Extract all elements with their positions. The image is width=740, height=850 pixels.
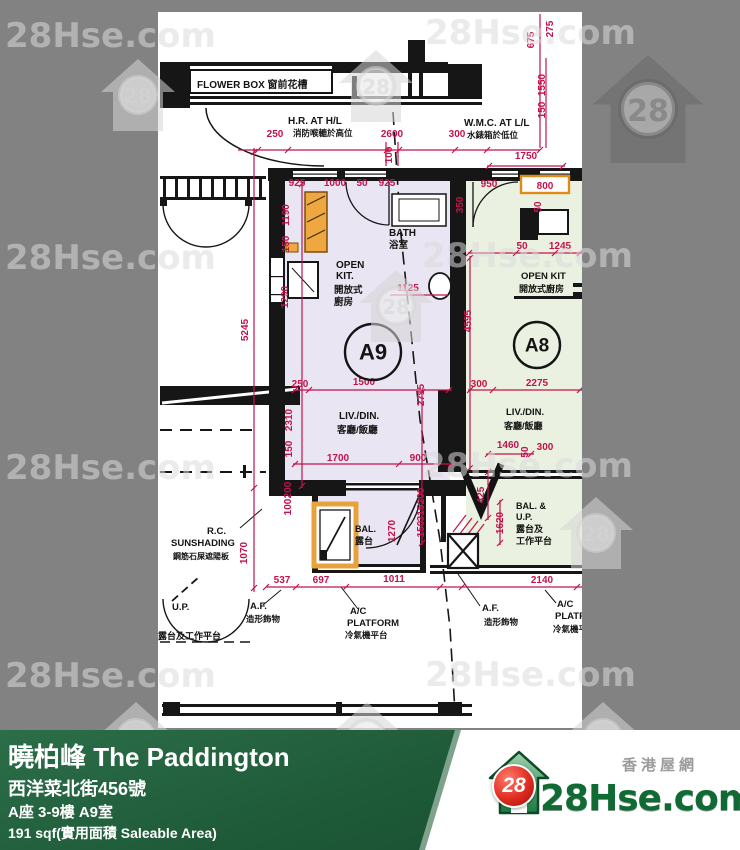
- plan-label: 冷氣機平台: [345, 630, 388, 640]
- area-info: 191 sqf(實用面積 Saleable Area): [8, 823, 217, 843]
- 28hse-brand[interactable]: 28 28Hse.com 香港屋網: [480, 730, 740, 850]
- dimension-label: 50: [516, 241, 528, 252]
- dimension-label: 1270: [387, 519, 398, 542]
- plan-label: A.F.: [482, 603, 499, 614]
- dimension-label: 150: [416, 520, 427, 537]
- plan-label: LIV./DIN.: [339, 411, 379, 422]
- dimension-label: 50: [356, 178, 368, 189]
- plan-label: BAL.: [355, 524, 376, 534]
- dimension-label: 697: [313, 575, 330, 586]
- plan-label: 開放式廚房: [519, 283, 564, 294]
- dimension-label: 2275: [526, 378, 549, 389]
- dimension-label: 925: [289, 178, 306, 189]
- floorplan-image: 2502600300100175067527515501509251000509…: [0, 0, 740, 850]
- dimension-label: 1245: [549, 241, 572, 252]
- dimension-label: 900: [410, 453, 427, 464]
- brand-wordmark: 28Hse.com: [540, 778, 740, 819]
- plan-label: 浴室: [389, 239, 409, 251]
- dimension-label: 300: [449, 129, 466, 140]
- badge-28-icon: 28: [492, 764, 536, 808]
- plan-label: U.P.: [516, 512, 532, 522]
- dimension-label: 537: [274, 575, 291, 586]
- dimension-label: 1620: [495, 511, 506, 534]
- plan-label: 消防喉轆於高位: [293, 128, 353, 138]
- plan-label: U.P.: [172, 602, 189, 613]
- plan-label: BAL. &: [516, 501, 546, 511]
- dimension-label: 1125: [397, 283, 419, 294]
- dimension-label: 1750: [515, 151, 538, 162]
- dimension-label: 150: [284, 440, 295, 457]
- dimension-label: 150: [281, 235, 292, 252]
- dimension-label: 5245: [240, 318, 251, 341]
- plan-label: 鋼筋石屎遮陽板: [172, 551, 230, 561]
- plan-label: 工作平台: [516, 535, 552, 546]
- dimension-label: 1290: [280, 285, 291, 308]
- plan-label: A.F.: [250, 601, 267, 612]
- dimension-label: 315: [416, 504, 427, 521]
- dimension-label: 200: [283, 481, 294, 498]
- dimension-label: 2600: [381, 129, 404, 140]
- plan-label: 造形飾物: [484, 617, 519, 627]
- dimension-label: 350: [455, 196, 466, 213]
- plan-label: W.M.C. AT L/L: [464, 118, 530, 129]
- plan-label: BATH: [389, 228, 416, 239]
- unit-number-label: A8: [525, 336, 549, 357]
- plan-label: 客廳/飯廳: [336, 424, 378, 436]
- plan-label: A/C: [350, 606, 367, 617]
- plan-label: FLOWER BOX 窗前花槽: [197, 78, 308, 91]
- dimension-label: 200: [416, 487, 427, 504]
- plan-label: 冷氣機平: [553, 624, 588, 634]
- dimension-label: 50: [533, 201, 544, 213]
- plan-label: 露台: [355, 535, 373, 546]
- dimension-label: 300: [471, 379, 488, 390]
- dimension-label: 925: [379, 178, 396, 189]
- footer-banner: 曉柏峰 The Paddington 西洋菜北街456號 A座 3-9樓 A9室…: [0, 730, 740, 850]
- dimension-label: 50: [520, 446, 531, 458]
- dimension-label: 1700: [327, 453, 350, 464]
- brand-chinese: 香港屋網: [622, 754, 698, 775]
- dimension-label: 2310: [284, 408, 295, 431]
- dimension-label: 100: [384, 146, 395, 163]
- plan-label: 開放式: [334, 284, 363, 296]
- unit-info: A座 3-9樓 A9室: [8, 801, 113, 822]
- dimension-label: 150: [537, 101, 548, 118]
- dimension-label: 1000: [324, 178, 347, 189]
- plan-label: 廚房: [334, 296, 353, 308]
- dimension-label: 425: [476, 486, 487, 503]
- plan-label: SUNSHADING: [171, 538, 235, 549]
- unit-number-label: A9: [359, 340, 387, 365]
- plan-label: R.C.: [207, 526, 226, 537]
- dimension-label: 1190: [281, 204, 292, 226]
- dimension-label: 2715: [416, 383, 427, 406]
- plan-label: A/C: [557, 599, 574, 610]
- building-address: 西洋菜北街456號: [8, 775, 146, 801]
- building-title: 曉柏峰 The Paddington: [8, 737, 290, 774]
- dimension-label: 1070: [239, 541, 250, 564]
- plan-label: 客廳/飯廳: [503, 420, 543, 431]
- dimension-label: 800: [537, 181, 554, 192]
- plan-label: 露台及工作平台: [158, 630, 221, 641]
- dimension-label: 1550: [537, 73, 548, 96]
- plan-label: OPEN: [336, 260, 364, 271]
- plan-label: H.R. AT H/L: [288, 116, 342, 127]
- plan-label: OPEN KIT: [521, 271, 566, 282]
- plan-label: 露台及: [516, 523, 544, 534]
- dimension-label: 275: [545, 20, 556, 37]
- plan-label: 造形飾物: [246, 614, 281, 624]
- dimension-label: 4595: [463, 309, 474, 332]
- dimension-label: 950: [481, 179, 498, 190]
- dimension-label: 300: [537, 442, 554, 453]
- plan-label: PLATFORM: [347, 618, 399, 629]
- dimension-label: 100: [283, 498, 294, 515]
- plan-label: PLATF: [555, 611, 585, 622]
- dimension-label: 250: [292, 379, 309, 390]
- dimension-label: 1011: [383, 574, 405, 585]
- plan-label: LIV./DIN.: [506, 407, 544, 418]
- page: 2502600300100175067527515501509251000509…: [0, 0, 740, 850]
- plan-label: KIT.: [336, 271, 354, 282]
- dimension-label: 675: [526, 31, 537, 48]
- dimension-label: 250: [267, 129, 284, 140]
- dimension-label: 2140: [531, 575, 554, 586]
- dimension-label: 1460: [497, 440, 520, 451]
- plan-label: 水錶箱於低位: [466, 130, 519, 140]
